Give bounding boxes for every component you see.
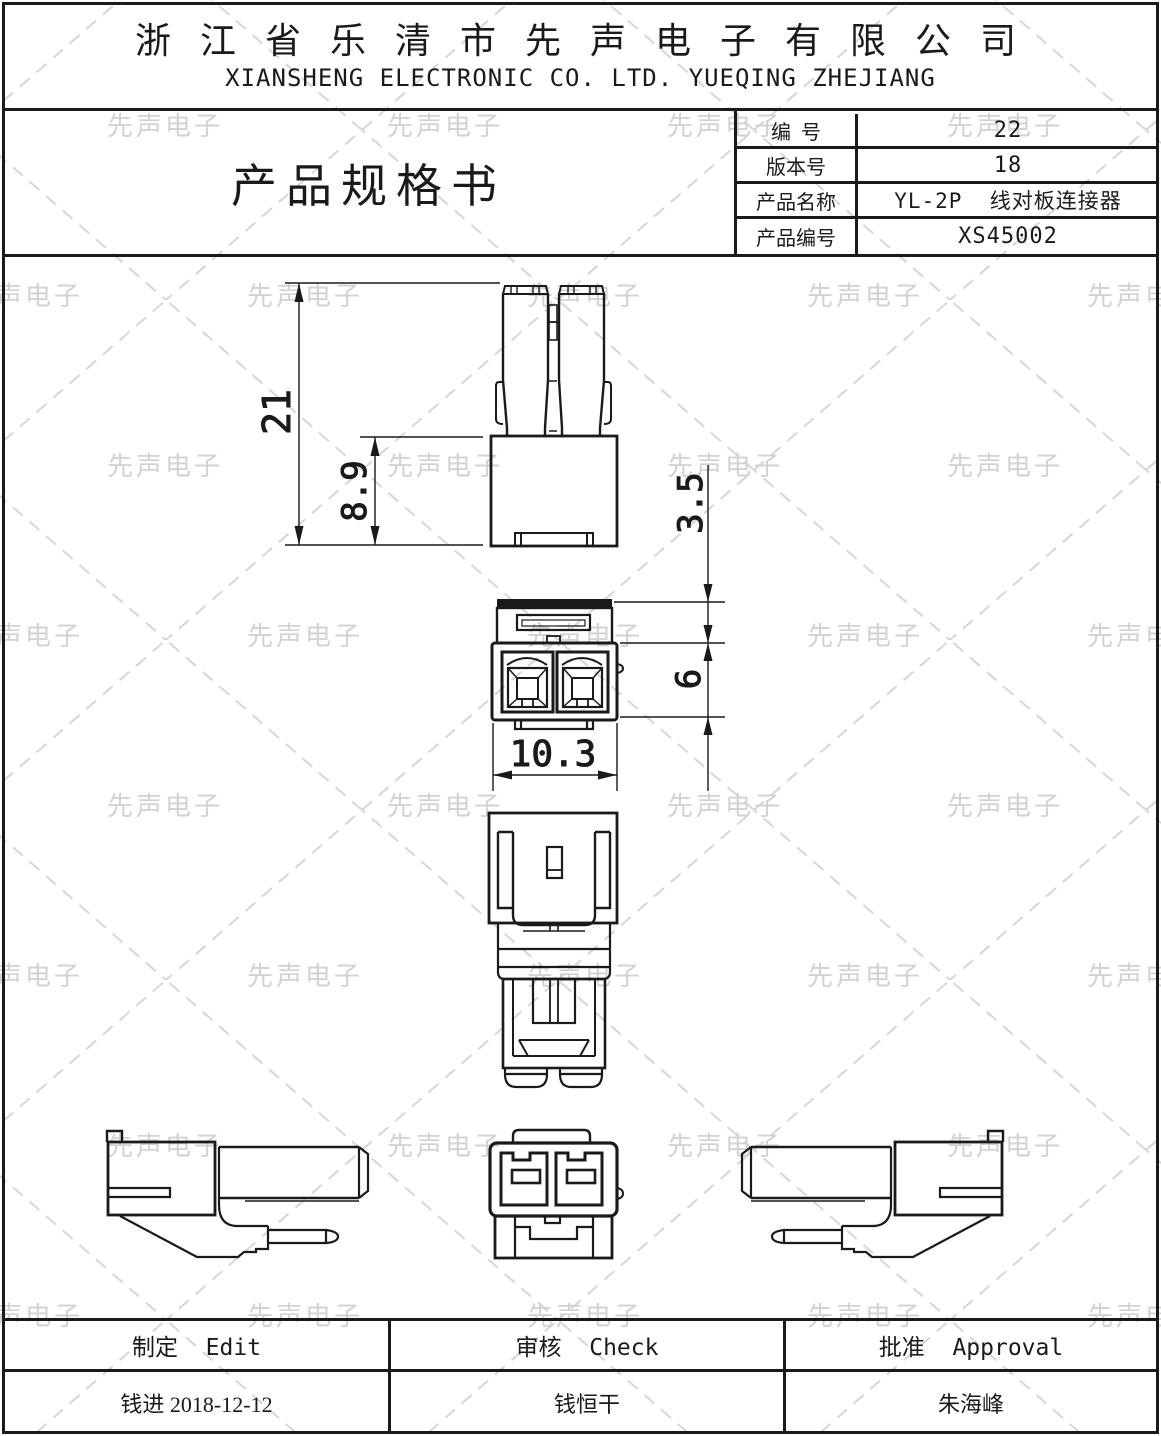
field-value-number: 22 xyxy=(858,114,1158,146)
field-label-version: 版本号 xyxy=(737,149,858,181)
dimension-housing-height: 8.9 xyxy=(335,437,483,545)
view-side-elevation: 21 8.9 xyxy=(255,283,617,546)
view-side-profile-left xyxy=(107,1131,368,1257)
approval-header-check: 审核 Check xyxy=(391,1321,783,1369)
dim-cavity-height: 6 xyxy=(669,669,709,689)
dimension-housing-width: 10.3 xyxy=(493,723,617,791)
dimension-flange-offset: 3.5 6 xyxy=(614,465,725,791)
field-label-product-code: 产品编号 xyxy=(737,219,858,254)
spec-row-number: 编 号 22 xyxy=(737,114,1158,149)
dim-flange-offset: 3.5 xyxy=(671,472,711,533)
approval-header-edit: 制定 Edit xyxy=(5,1321,388,1369)
spec-row-version: 版本号 18 xyxy=(737,149,1158,184)
spec-row-product-code: 产品编号 XS45002 xyxy=(737,219,1158,254)
view-rear-elevation xyxy=(489,813,617,1087)
view-front-face-bottom xyxy=(490,1130,623,1258)
approval-value-approval: 朱海峰 xyxy=(786,1372,1156,1433)
dim-total-height: 21 xyxy=(255,389,299,435)
dimension-total-height: 21 xyxy=(255,283,500,545)
field-label-product-name: 产品名称 xyxy=(737,184,858,216)
approval-header-approval: 批准 Approval xyxy=(786,1321,1156,1369)
field-value-version: 18 xyxy=(858,149,1158,181)
document-title: 产品规格书 xyxy=(3,111,734,254)
field-value-product-name: YL-2P 线对板连接器 xyxy=(858,184,1158,216)
spec-row-product-name: 产品名称 YL-2P 线对板连接器 xyxy=(737,184,1158,219)
spec-sheet-page: 先声电子先声电子先声电子先声电子先声电子先声电子先声电子先声电子先声电子先声电子… xyxy=(0,0,1161,1436)
view-side-profile-right xyxy=(742,1131,1003,1257)
field-label-number: 编 号 xyxy=(737,114,858,146)
titleblock-divider xyxy=(5,254,1156,257)
company-name-en: XIANSHENG ELECTRONIC CO. LTD. YUEQING ZH… xyxy=(0,64,1161,92)
company-name-cn: 浙 江 省 乐 清 市 先 声 电 子 有 限 公 司 xyxy=(0,12,1161,64)
dim-housing-width: 10.3 xyxy=(510,734,597,775)
field-value-product-code: XS45002 xyxy=(858,219,1158,254)
approval-value-check: 钱恒干 xyxy=(391,1372,783,1433)
spec-info-table: 编 号 22 版本号 18 产品名称 YL-2P 线对板连接器 产品编号 XS4… xyxy=(737,114,1158,254)
approval-value-edit: 钱进 2018-12-12 xyxy=(5,1372,388,1433)
view-mating-face: 3.5 6 10.3 xyxy=(492,465,725,791)
dim-housing-height: 8.9 xyxy=(335,460,375,521)
